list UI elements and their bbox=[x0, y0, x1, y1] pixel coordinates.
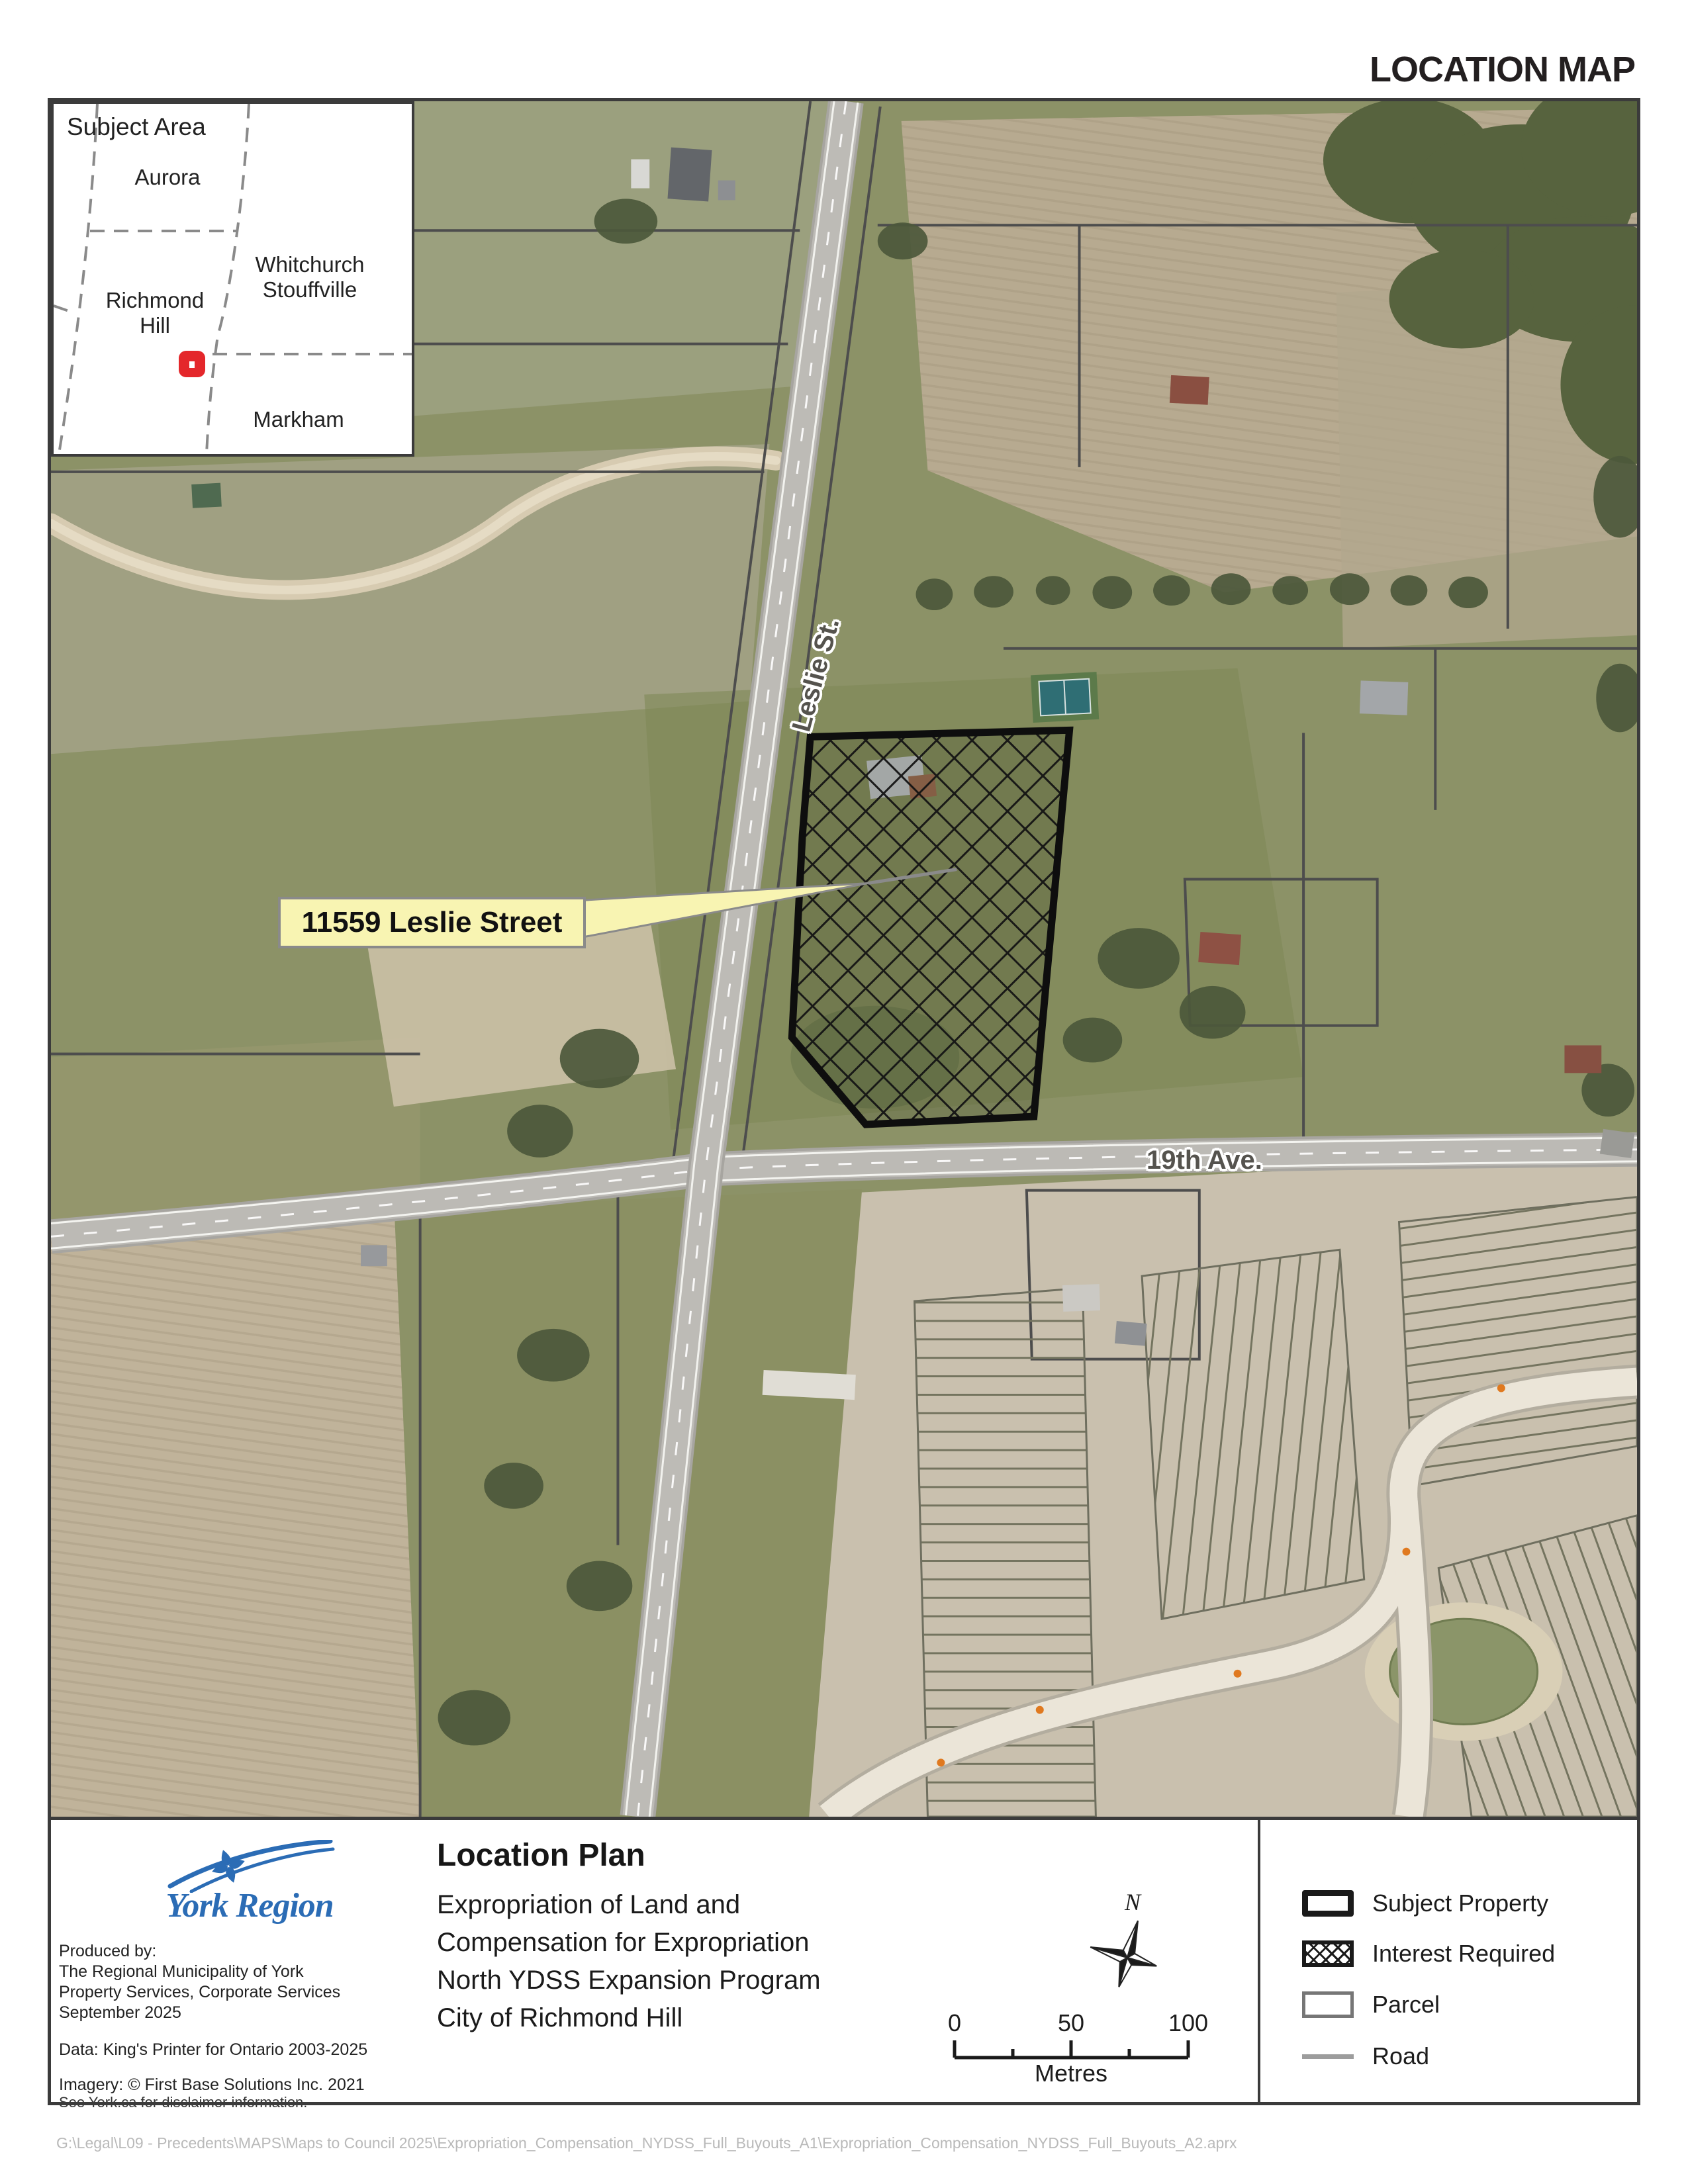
map-subtitle: Expropriation of Land and Compensation f… bbox=[437, 1886, 821, 2037]
parcel-swatch-icon bbox=[1302, 1991, 1354, 2018]
york-region-logo bbox=[164, 1840, 336, 1893]
inset-region-whitchurch-line2: Stouffville bbox=[244, 277, 376, 302]
produced-by-line2: The Regional Municipality of York bbox=[59, 1962, 304, 1982]
north-label: N bbox=[1124, 1889, 1142, 1915]
map-subtitle-line3: North YDSS Expansion Program bbox=[437, 1962, 821, 1999]
map-subtitle-line4: City of Richmond Hill bbox=[437, 1999, 821, 2037]
scale-unit: Metres bbox=[1035, 2060, 1107, 2087]
scale-bar: 0 50 100 Metres bbox=[937, 2007, 1215, 2087]
road-swatch-icon bbox=[1302, 2054, 1354, 2059]
subject-property-polygon bbox=[792, 730, 1069, 1124]
north-arrow-icon: N bbox=[1069, 1878, 1188, 2021]
location-map-page: LOCATION MAP bbox=[0, 0, 1688, 2184]
document-file-path: G:\Legal\L09 - Precedents\MAPS\Maps to C… bbox=[56, 2134, 1237, 2152]
produced-by-line4: September 2025 bbox=[59, 2003, 181, 2023]
road-label-19th-ave: 19th Ave. bbox=[1147, 1146, 1262, 1175]
inset-title: Subject Area bbox=[67, 113, 206, 141]
page-title: LOCATION MAP bbox=[927, 49, 1635, 90]
interest-required-swatch-icon bbox=[1302, 1940, 1354, 1967]
subject-property-swatch-icon bbox=[1302, 1890, 1354, 1917]
address-callout-label: 11559 Leslie Street bbox=[302, 906, 563, 939]
legend-item-road: Road bbox=[1302, 2040, 1429, 2072]
legend-item-parcel: Parcel bbox=[1302, 1989, 1440, 2021]
inset-region-richmond-line1: Richmond bbox=[102, 288, 208, 313]
subject-area-inset-map: Subject Area Aurora Whitchurch Stouffvil… bbox=[51, 101, 414, 457]
inset-region-whitchurch-line1: Whitchurch bbox=[244, 252, 376, 277]
inset-region-aurora: Aurora bbox=[121, 165, 214, 190]
inset-region-richmond-line2: Hill bbox=[102, 313, 208, 338]
inset-region-markham: Markham bbox=[249, 407, 348, 432]
scale-label-50: 50 bbox=[1058, 2009, 1084, 2036]
legend-item-interest-required: Interest Required bbox=[1302, 1938, 1555, 1970]
map-title: Location Plan bbox=[437, 1837, 645, 1874]
legend-label-road: Road bbox=[1372, 2042, 1429, 2070]
map-subtitle-line2: Compensation for Expropriation bbox=[437, 1924, 821, 1962]
legend-item-subject-property: Subject Property bbox=[1302, 1888, 1548, 1919]
scale-label-0: 0 bbox=[948, 2009, 961, 2036]
subject-location-marker-icon bbox=[179, 351, 205, 377]
legend-label-subject-property: Subject Property bbox=[1372, 1889, 1548, 1917]
main-map: Leslie St. 19th Ave. 11559 Leslie Street bbox=[48, 98, 1640, 1820]
compass-star bbox=[1082, 1910, 1168, 1995]
produced-by-line1: Produced by: bbox=[59, 1941, 156, 1962]
tennis-court bbox=[1031, 672, 1099, 723]
legend-label-interest-required: Interest Required bbox=[1372, 1940, 1555, 1968]
legend-label-parcel: Parcel bbox=[1372, 1991, 1440, 2019]
panel-bottom-rule bbox=[48, 2102, 1640, 2105]
york-region-logo-text: York Region bbox=[130, 1886, 369, 1925]
stormwater-pond bbox=[1365, 1602, 1563, 1741]
inset-region-richmond-hill: Richmond Hill bbox=[102, 288, 208, 338]
map-subtitle-line1: Expropriation of Land and bbox=[437, 1886, 821, 1924]
scale-label-100: 100 bbox=[1168, 2009, 1208, 2036]
produced-by-line3: Property Services, Corporate Services bbox=[59, 1982, 340, 2003]
address-callout: 11559 Leslie Street bbox=[278, 897, 586, 948]
legend: Subject Property Interest Required Parce… bbox=[1258, 1820, 1636, 2102]
imagery-credit: Imagery: © First Base Solutions Inc. 202… bbox=[59, 2075, 365, 2095]
map-marginalia-panel: York Region Produced by: The Regional Mu… bbox=[48, 1817, 1640, 2105]
inset-region-whitchurch: Whitchurch Stouffville bbox=[244, 252, 376, 302]
data-credit: Data: King's Printer for Ontario 2003-20… bbox=[59, 2040, 367, 2060]
